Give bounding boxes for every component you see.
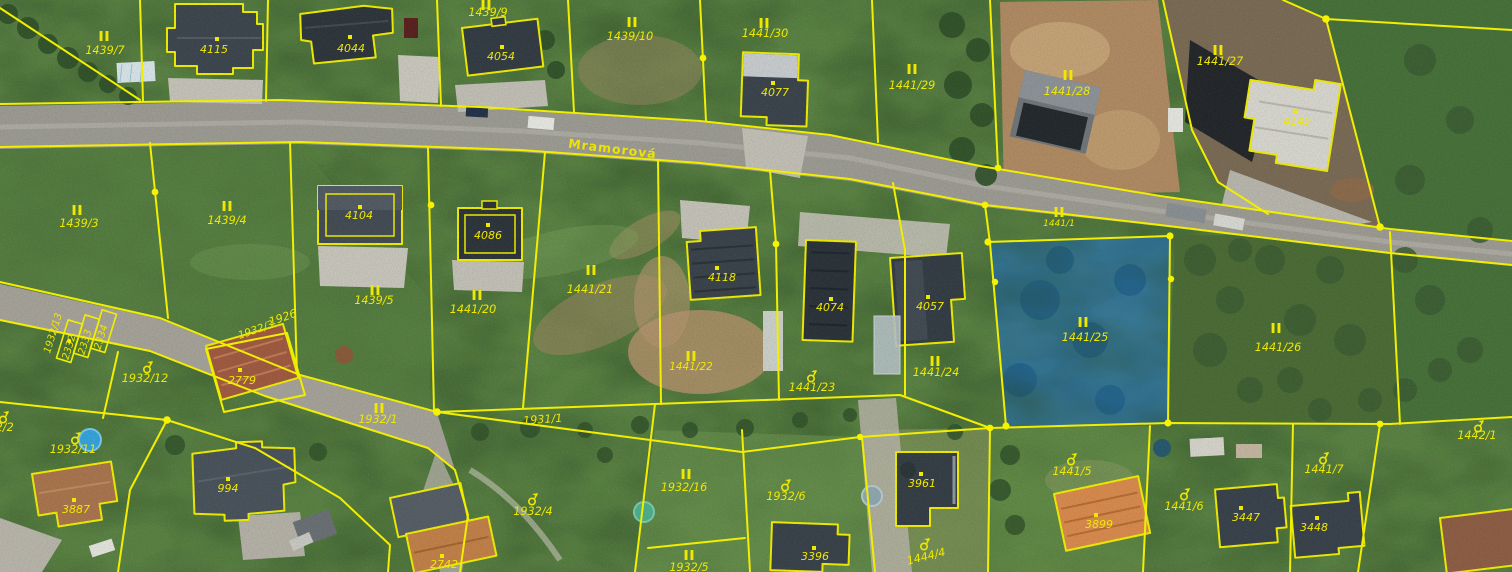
building-label-4074: 4074 [816,301,844,314]
building-point-icon [771,81,775,85]
building-label-4149: 4149 [1283,115,1311,128]
building-point-icon [238,368,242,372]
building-label-3887: 3887 [62,503,90,516]
parcel-label-1441-23: 1441/23 [789,381,835,394]
building-label-4057: 4057 [916,300,944,313]
parcel-label-1439-7: 1439/7 [85,44,125,57]
parcel-label-1932-2: 1932/2 [0,421,14,434]
building-label-4054: 4054 [487,50,515,63]
parcel-label-1441-5: 1441/5 [1052,465,1091,478]
parcel-label-1441-24: 1441/24 [913,366,959,379]
parcel-label-1441-20: 1441/20 [450,303,496,316]
building-point-icon [486,223,490,227]
building-label-3447: 3447 [1232,511,1260,524]
parcel-label-1439-9: 1439/9 [468,6,507,19]
building-point-icon [926,295,930,299]
parcel-label-1931-1: 1931/1 [523,412,563,428]
building-label-3961: 3961 [908,477,936,490]
parcel-label-1441-1: 1441/1 [1043,219,1075,229]
parcel-label-1441-6: 1441/6 [1164,500,1203,513]
building-point-icon [715,266,719,270]
building-point-icon [1239,506,1243,510]
building-point-icon [500,45,504,49]
building-label-4115: 4115 [200,43,228,56]
building-point-icon [1094,513,1098,517]
building-point-icon [919,472,923,476]
building-label-3899: 3899 [1085,518,1113,531]
building-label-4086: 4086 [474,229,502,242]
parcel-label-1441-22: 1441/22 [669,361,713,373]
parcel-label-1932-4: 1932/4 [513,505,552,518]
building-label-4044: 4044 [337,42,365,55]
parcel-label-1441-21: 1441/21 [567,283,613,296]
parcel-label-1439-4: 1439/4 [207,214,246,227]
building-point-icon [215,37,219,41]
building-label-4104: 4104 [345,209,373,222]
building-label-3396: 3396 [801,550,829,563]
parcel-label-1441-29: 1441/29 [889,79,935,92]
parcel-label-1439-3: 1439/3 [59,217,98,230]
parcel-label-1932-12: 1932/12 [122,372,168,385]
parcel-label-1441-26: 1441/26 [1255,341,1301,354]
parcel-label-1932-1: 1932/1 [358,413,397,426]
parcel-label-1441-7: 1441/7 [1304,463,1344,476]
building-label-4077: 4077 [761,86,789,99]
building-label-4118: 4118 [708,271,736,284]
parcel-label-1439-10: 1439/10 [607,30,653,43]
building-point-icon [348,35,352,39]
parcel-label-1932-6: 1932/6 [766,490,805,503]
parcel-label-1441-27: 1441/27 [1197,55,1244,68]
building-label-2779: 2779 [228,374,256,387]
parcel-label-1441-30: 1441/30 [742,27,788,40]
building-label-3448: 3448 [1300,521,1328,534]
parcel-label-1932-16: 1932/16 [661,481,707,494]
parcel-label-1441-28: 1441/28 [1044,85,1090,98]
parcel-label-1442-1: 1442/1 [1457,429,1496,442]
parcel-label-1932-5: 1932/5 [669,561,708,572]
cadastral-map-viewport[interactable]: 1439/71439/91439/101441/301441/291441/28… [0,0,1512,572]
parcel-label-1932-11: 1932/11 [50,443,96,456]
map-canvas: 1439/71439/91439/101441/301441/291441/28… [0,0,1512,572]
building-label-994: 994 [218,482,239,495]
building-label-2742: 2742 [430,558,458,571]
building-point-icon [1293,110,1297,114]
parcel-label-1439-5: 1439/5 [354,294,393,307]
building-point-icon [72,498,76,502]
building-point-icon [1315,516,1319,520]
parcel-label-1441-25: 1441/25 [1062,331,1108,344]
building-point-icon [226,477,230,481]
